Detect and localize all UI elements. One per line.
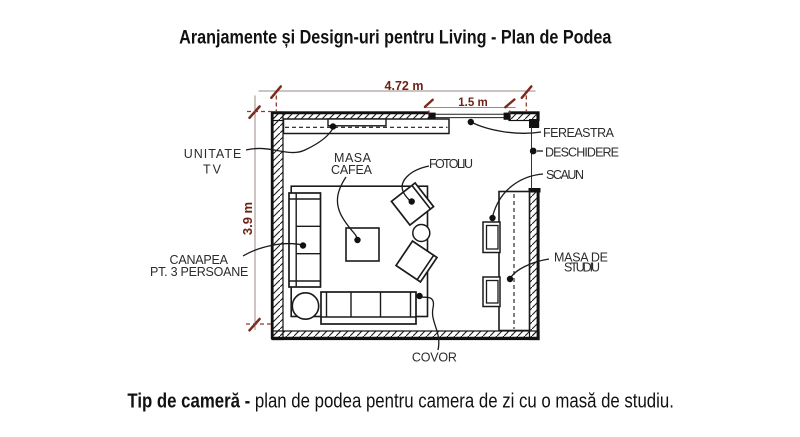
svg-text:4.72 m: 4.72 m	[385, 79, 424, 93]
svg-text:UNITATE: UNITATE	[184, 147, 242, 161]
svg-text:FEREASTRA: FEREASTRA	[543, 126, 615, 140]
svg-text:COVOR: COVOR	[412, 351, 457, 365]
svg-text:STUDIU: STUDIU	[564, 261, 600, 275]
svg-text:TV: TV	[203, 163, 222, 177]
svg-text:3.9 m: 3.9 m	[240, 202, 255, 235]
svg-text:1.5 m: 1.5 m	[458, 97, 487, 109]
svg-text:FOTOLIU: FOTOLIU	[429, 157, 473, 171]
svg-text:Aranjamente și Design-uri pent: Aranjamente și Design-uri pentru Living …	[179, 26, 612, 48]
svg-text:CAFEA: CAFEA	[331, 163, 373, 177]
svg-text:DESCHIDERE: DESCHIDERE	[545, 146, 619, 160]
svg-text:PT. 3 PERSOANE: PT. 3 PERSOANE	[150, 265, 248, 279]
svg-text:Tip de cameră - plan de podea: Tip de cameră - plan de podea pentru cam…	[127, 389, 673, 412]
svg-text:SCAUN: SCAUN	[546, 168, 584, 182]
